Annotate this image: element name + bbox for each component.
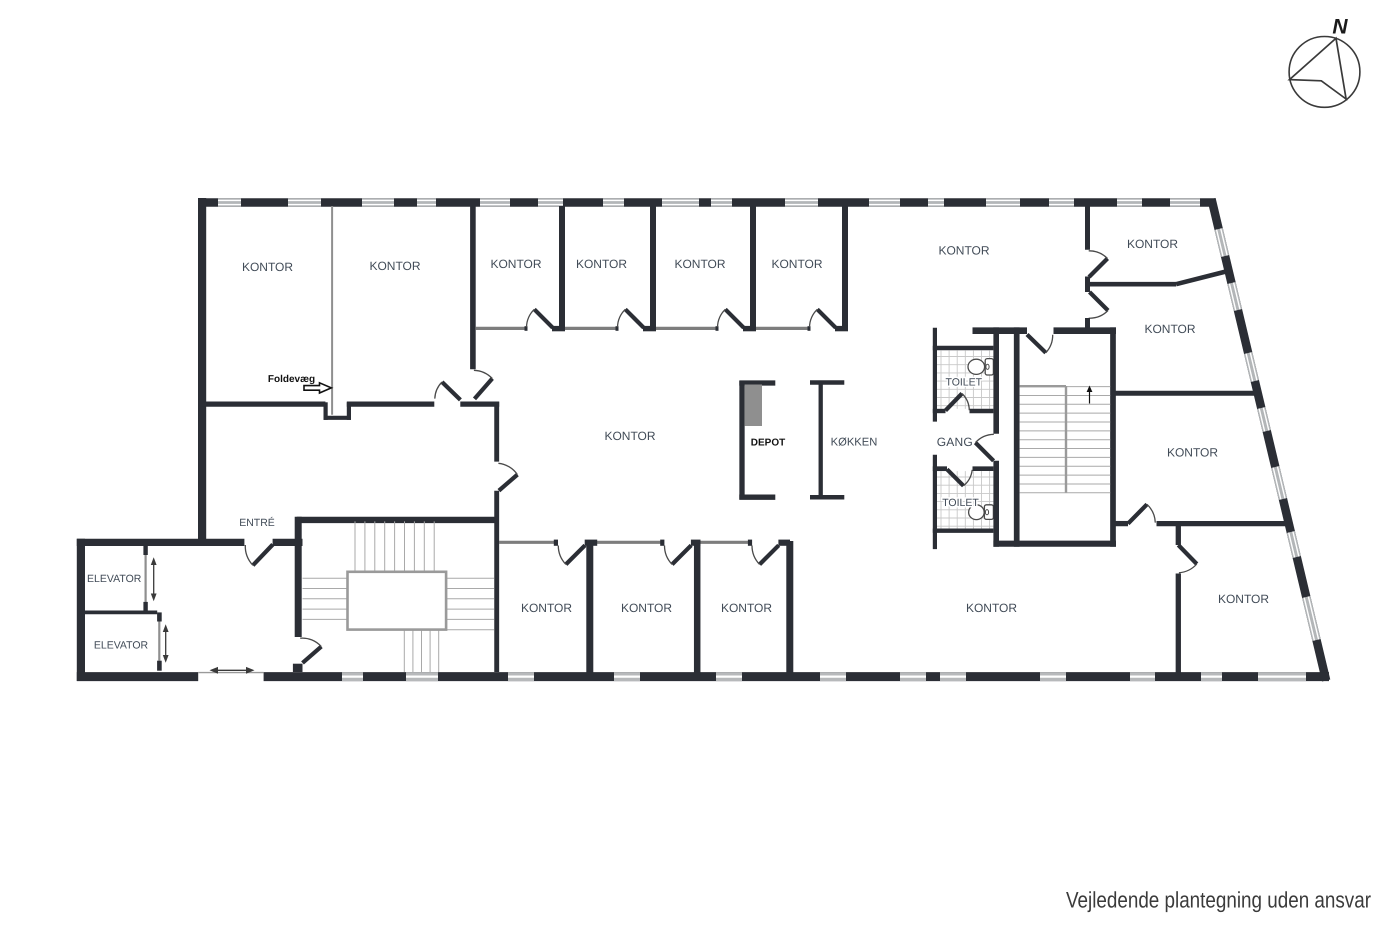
svg-text:Vejledende plantegning uden an: Vejledende plantegning uden ansvar: [1066, 888, 1371, 913]
svg-text:ENTRÉ: ENTRÉ: [239, 516, 275, 529]
svg-text:KONTOR: KONTOR: [521, 601, 572, 615]
svg-text:KONTOR: KONTOR: [576, 257, 627, 271]
svg-text:KONTOR: KONTOR: [604, 429, 655, 443]
svg-text:KØKKEN: KØKKEN: [831, 437, 878, 449]
svg-text:ELEVATOR: ELEVATOR: [94, 640, 149, 652]
svg-text:KONTOR: KONTOR: [1127, 237, 1178, 251]
svg-text:KONTOR: KONTOR: [1218, 592, 1269, 606]
svg-text:DEPOT: DEPOT: [751, 438, 785, 449]
svg-text:KONTOR: KONTOR: [771, 257, 822, 271]
svg-text:KONTOR: KONTOR: [490, 257, 541, 271]
svg-text:TOILET: TOILET: [946, 377, 983, 389]
svg-text:KONTOR: KONTOR: [621, 601, 672, 615]
svg-text:Foldevæg: Foldevæg: [268, 374, 315, 385]
svg-text:KONTOR: KONTOR: [938, 244, 989, 258]
svg-text:KONTOR: KONTOR: [966, 601, 1017, 615]
svg-text:N: N: [1332, 16, 1348, 39]
svg-text:KONTOR: KONTOR: [369, 259, 420, 273]
svg-text:KONTOR: KONTOR: [721, 601, 772, 615]
svg-text:GANG: GANG: [937, 435, 973, 449]
svg-text:ELEVATOR: ELEVATOR: [87, 573, 142, 585]
svg-text:KONTOR: KONTOR: [674, 257, 725, 271]
svg-text:KONTOR: KONTOR: [1144, 322, 1195, 336]
svg-text:KONTOR: KONTOR: [242, 260, 293, 274]
svg-text:TOILET: TOILET: [942, 497, 979, 509]
svg-text:KONTOR: KONTOR: [1167, 446, 1218, 460]
